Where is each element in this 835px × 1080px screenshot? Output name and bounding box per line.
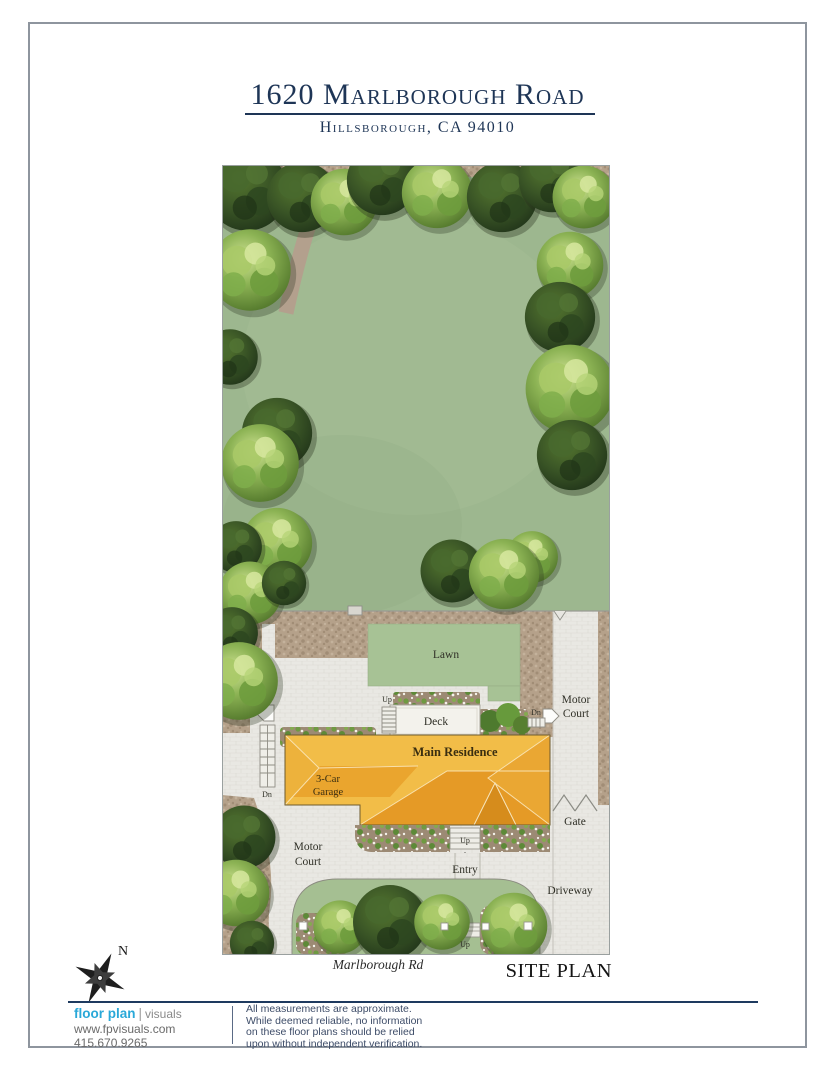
page: 1620 Marlborough Road Hillsborough, CA 9…	[0, 0, 835, 1080]
motor-court-left-line1: Motor	[294, 841, 323, 853]
page-subtitle: Hillsborough, CA 94010	[0, 119, 835, 137]
main-residence-label: Main Residence	[412, 745, 498, 759]
site-plan-caption: SITE PLAN	[452, 960, 612, 983]
garage-label-line1: 3-Car	[316, 774, 340, 785]
footer-logo-primary: floor plan	[74, 1006, 136, 1021]
compass-north-label: N	[118, 944, 128, 959]
street-label: Marlborough Rd	[278, 957, 478, 973]
compass-rose: N	[70, 936, 142, 1006]
footer-phone: 415.670.9265	[74, 1036, 147, 1050]
gate-label: Gate	[564, 816, 586, 828]
deck-label: Deck	[424, 716, 449, 728]
deck-up-label: Up	[382, 695, 392, 704]
title-underline	[245, 113, 595, 115]
motor-court-left-line2: Court	[295, 856, 322, 868]
motor-court-right-line2: Court	[563, 708, 590, 720]
footer-logo-divider: |	[136, 1006, 146, 1021]
left-dn-label: Dn	[262, 790, 272, 799]
disclaimer-line: upon without independent verification.	[246, 1039, 422, 1051]
footer-disclaimer: All measurements are approximate. While …	[246, 1004, 422, 1050]
right-dn-label: Dn	[531, 708, 541, 717]
page-title: 1620 Marlborough Road	[0, 78, 835, 112]
front-bed-right	[480, 825, 550, 852]
side-border-bed	[598, 611, 610, 805]
street-up-label: Up	[460, 940, 470, 949]
entry-up-label: Up	[460, 836, 470, 845]
motor-court-right-line1: Motor	[562, 694, 591, 706]
lawn-label: Lawn	[433, 649, 459, 661]
motor-court-right	[553, 611, 598, 955]
rear-gate-symbol	[348, 606, 362, 615]
driveway-label: Driveway	[547, 885, 593, 897]
footer-logo-secondary: visuals	[145, 1007, 182, 1021]
deck-stairs	[382, 707, 396, 733]
footer-website: www.fpvisuals.com	[74, 1022, 175, 1036]
footer-logo: floor plan|visuals	[74, 1006, 182, 1021]
site-plan-drawing: Lawn Deck Main Residence 3-Car Garage Mo…	[222, 165, 610, 955]
disclaimer-line: on these floor plans should be relied	[246, 1027, 422, 1039]
footer-vertical-divider	[232, 1006, 233, 1044]
footer-separator	[68, 1001, 758, 1003]
front-bed-left	[355, 825, 450, 852]
disclaimer-line: All measurements are approximate.	[246, 1004, 422, 1016]
entry-label: Entry	[452, 864, 478, 876]
garage-label-line2: Garage	[313, 787, 344, 798]
